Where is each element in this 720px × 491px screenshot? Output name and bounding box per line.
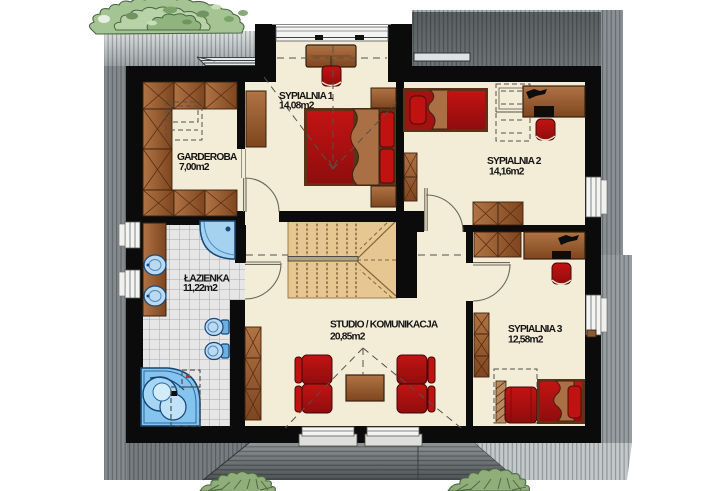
svg-text:STUDIO / KOMUNIKACJA: STUDIO / KOMUNIKACJA [330,320,439,331]
svg-text:11,22m2: 11,22m2 [183,283,218,294]
svg-text:SYPIALNIA 3: SYPIALNIA 3 [508,324,563,335]
svg-text:14,08m2: 14,08m2 [279,101,315,112]
svg-text:SYPIALNIA 2: SYPIALNIA 2 [487,156,542,167]
svg-text:14,16m2: 14,16m2 [489,167,525,178]
svg-text:7,00m2: 7,00m2 [179,162,210,173]
svg-text:20,85m2: 20,85m2 [330,332,366,343]
svg-text:12,58m2: 12,58m2 [508,335,544,346]
